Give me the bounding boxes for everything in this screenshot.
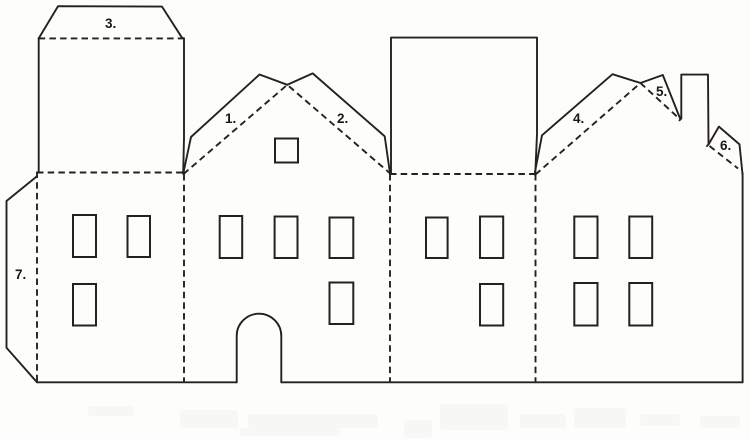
svg-text:1.: 1. [225, 111, 236, 126]
svg-text:3.: 3. [105, 16, 116, 31]
svg-text:4.: 4. [573, 111, 584, 126]
svg-text:2.: 2. [337, 111, 348, 126]
svg-text:6.: 6. [720, 138, 731, 153]
svg-text:5.: 5. [656, 84, 667, 99]
svg-text:7.: 7. [15, 267, 26, 282]
